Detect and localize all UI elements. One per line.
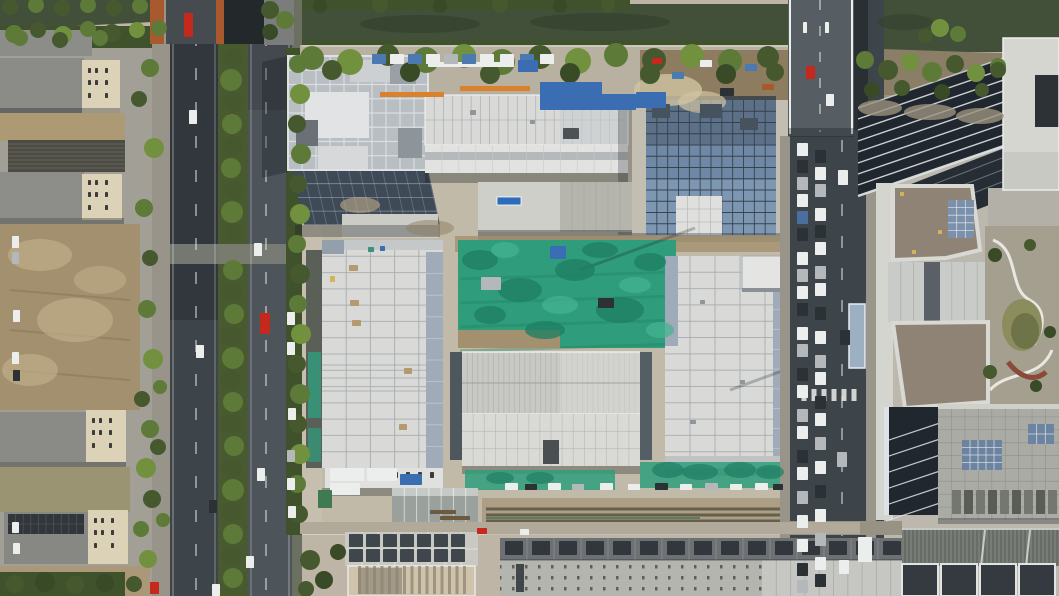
roof-hatch-strip [924,262,940,322]
marks-item [762,84,774,90]
vehicles-item [505,483,518,490]
vehicles-item [400,474,422,485]
tower-shadow [262,56,288,178]
marks-item [559,541,577,555]
marks-item [92,443,95,448]
trees-item [290,264,310,284]
bridge-end-shadow [788,128,854,137]
trees-item [222,414,242,434]
trees-item [1024,239,1036,251]
trees-item [716,64,736,84]
vehicles-item [797,563,808,576]
trees-item [983,365,997,379]
vehicles-item [209,500,217,513]
vehicles-item [550,246,566,259]
marks-item [95,80,98,85]
vehicles-item [636,92,666,108]
marks-item [88,68,91,73]
trees-item [261,1,279,19]
marks-item [530,120,535,124]
blobs-item [360,15,480,33]
marks-item [440,516,470,520]
trees-item [35,572,55,592]
marks-item [938,230,942,234]
marks-item [105,68,108,73]
vehicles-item [372,54,386,64]
trees-item [946,55,964,73]
blobs-item [474,306,506,324]
trees-item [1030,380,1042,392]
vehicles-item [12,522,19,533]
vehicles-item [797,467,808,480]
screenshot-root [0,0,1059,596]
gabled-unit [980,564,1016,596]
marks-item [652,58,662,64]
marks-item [101,530,104,535]
vehicles-item [189,110,197,124]
marks-item [532,541,550,555]
vehicles-item [462,54,476,64]
blobs-item [406,220,454,236]
white-tower-lower [1003,152,1059,190]
marks-item [720,88,734,96]
trees-item [141,420,159,438]
w3-door [543,440,559,464]
trees-item [224,92,244,112]
trees-item [66,576,84,594]
blobs-item [2,354,58,386]
marks-item [94,518,97,523]
vehicles-item [815,266,826,279]
marks-item [721,541,739,555]
blue-banner [497,197,521,205]
marks-item [92,418,95,423]
trees-item [322,60,342,80]
marks-item [690,420,696,424]
trees-item [223,136,243,156]
marks-item [1012,490,1021,514]
marks-item [700,104,722,118]
blobs-item [340,197,380,213]
trees-item [139,550,157,568]
marks-item [88,192,91,197]
marks-item [109,430,112,435]
marks-item [1000,490,1009,514]
trees-item [54,0,70,16]
site-offices-roof [392,488,478,496]
marks-item [694,541,712,555]
marks-item [825,22,829,33]
marks-item [434,549,448,562]
trees-item [224,180,244,200]
building-a-shadow [425,173,628,183]
marks-item [883,541,901,555]
trees-item [291,324,311,344]
marks-item [99,430,102,435]
blobs-item [652,462,684,478]
vehicles-item [330,468,364,481]
vehicles-item [150,582,159,594]
vehicles-item [797,327,808,340]
vehicles-item [518,60,538,72]
vehicles-item [408,54,422,64]
marks-item [105,180,108,185]
tower-lower-face [886,407,940,515]
trees-item [604,43,628,67]
vehicles-item [500,54,514,64]
blobs-item [530,13,670,31]
marks-item [88,180,91,185]
trees-item [223,524,243,544]
trees-item [894,80,910,96]
building-wall [82,60,120,113]
underpass [224,0,264,44]
vehicles-item [797,385,808,398]
trees-item [222,458,242,478]
blobs-item [1011,313,1039,349]
marks-item [105,205,108,210]
blobs-item [526,472,554,484]
vehicles-item [540,54,554,64]
yard-rows [8,144,125,168]
trees-item [290,84,310,104]
marks-item [94,530,97,535]
trees-item [151,20,167,36]
marks-item [111,543,114,548]
vehicles-item [184,13,193,37]
vehicles-item [705,483,718,490]
vehicles-item [797,143,808,156]
gabled-unit [902,564,938,596]
vehicles-item [826,94,834,106]
marks-item [740,380,745,384]
blobs-item [877,14,933,30]
marks-item [803,22,807,33]
vehicles-item [600,94,636,110]
vehicles-item [815,557,826,570]
marks-item [976,490,985,514]
sw-facade-patch [358,568,402,594]
marks-item [349,549,363,562]
trees-item [222,546,242,566]
vehicles-item [797,450,808,463]
marks-item [740,118,758,130]
trees-item [223,568,243,588]
vehicles-item [815,574,826,587]
blobs-item [37,298,113,342]
vehicles-item [815,307,826,320]
blobs-item [525,321,565,339]
marks-item [964,490,973,514]
marks-item [460,86,530,91]
marks-item [352,320,361,326]
trees-item [640,64,660,84]
marks-item [417,549,431,562]
vehicles-item [330,483,360,495]
trees-item [222,282,242,302]
vehicles-item [815,437,826,450]
vehicles-item [815,242,826,255]
building-shadow [0,462,126,467]
bridge-rail [216,0,224,44]
vehicles-item [288,408,296,420]
vehicles-item [797,252,808,265]
concrete-shadow [938,518,1059,524]
white-tower-court [1035,75,1059,127]
corrugated-roof [902,528,1059,566]
vehicles-item [797,580,808,593]
trees-item [300,550,320,570]
marks-item [700,300,705,304]
vehicles-item [797,286,808,299]
north-bank-trees [300,0,630,10]
trees-item [136,458,156,478]
vehicles-item [520,529,529,535]
vehicles-item [196,345,204,358]
trees-item [220,69,242,91]
marks-item [349,265,358,271]
blobs-item [555,259,595,281]
vehicles-item [572,484,584,490]
marks-item [99,418,102,423]
gabled-unit [941,564,977,596]
trees-item [931,19,949,37]
marks-item [109,443,112,448]
trees-item [288,235,306,253]
blobs-item [724,462,756,478]
vehicles-item [797,491,808,504]
vehicles-item [13,310,20,322]
vehicles-item [13,370,20,381]
vehicles-item [318,490,332,508]
marks-item [400,549,414,562]
trees-item [6,575,24,593]
vehicles-item [797,194,808,207]
blobs-item [582,242,618,258]
marks-item [417,534,431,547]
marks-item [434,534,448,547]
trees-item [950,26,966,42]
marks-item [400,534,414,547]
marks-item [111,518,114,523]
trees-item [289,175,307,193]
marks-item [748,541,766,555]
trees-item [856,51,874,69]
vehicles-item [797,344,808,357]
vehicles-item [815,167,826,180]
w3-east-edge [640,352,652,460]
trees-item [560,63,580,83]
vehicles-item [680,484,692,490]
trees-item [96,574,114,592]
vehicles-item [287,312,295,325]
vehicles-item [858,537,872,562]
marks-item [350,300,359,306]
vehicles-item [548,483,561,490]
trees-item [223,260,243,280]
trees-item [276,11,294,29]
vehicles-item [730,484,742,490]
building-roof [0,412,86,462]
marks-item [101,518,104,523]
marks-item [366,549,380,562]
vehicles-item [815,485,826,498]
blobs-item [756,465,784,479]
marks-item [1036,490,1045,514]
trees-item [224,436,244,456]
vehicles-item [797,269,808,282]
trees-item [92,30,108,46]
trees-item [144,138,164,158]
vehicles-item [797,211,808,224]
marks-item [399,424,407,430]
blobs-item [486,472,514,484]
vehicles-item [797,426,808,439]
building-wall [88,510,128,564]
trees-item [766,63,784,81]
trees-item [222,502,242,522]
trees-item [12,30,28,46]
vehicles-item [797,515,808,528]
grass-strip [0,467,130,512]
trees-item [221,158,241,178]
w3-west-edge [450,352,462,460]
vehicles-item [288,506,296,518]
marks-item [430,472,434,478]
vehicles-item [212,584,220,596]
vehicles-item [444,54,458,64]
marks-item [988,490,997,514]
trees-item [922,62,942,82]
trees-item [262,24,278,40]
building-roof [0,58,84,113]
tower-opening [398,128,422,158]
marks-item [829,541,847,555]
vehicles-item [480,54,494,64]
marks-item [563,128,579,139]
vehicles-item [815,372,826,385]
vehicles-item [797,228,808,241]
trees-item [300,46,324,70]
trees-item [290,204,310,224]
vehicles-item [806,66,815,79]
building-roof [0,172,84,218]
trees-item [222,347,244,369]
vehicles-item [525,484,537,490]
blobs-item [904,104,956,120]
aerial-photo [0,0,1059,596]
building-wall [86,410,126,462]
marks-item [380,92,444,97]
vehicles-item [815,533,826,546]
marks-item [900,192,904,196]
concrete-parapet [938,404,1059,409]
tower-white-edge [884,407,889,515]
trees-item [106,0,122,16]
vehicles-item [815,413,826,426]
vehicles-item [815,225,826,238]
marks-item [775,541,793,555]
vehicles-item [815,509,826,522]
vehicles-item [540,82,602,110]
marks-item [586,541,604,555]
vehicles-item [477,528,487,534]
trees-item [143,490,161,508]
gravel-terrace-2 [893,322,988,408]
vehicles-item [815,208,826,221]
blobs-item [634,253,666,271]
marks-item [105,192,108,197]
marks-item [105,93,108,98]
trees-item [224,304,244,324]
vehicles-item [257,468,265,481]
trees-item [291,144,311,164]
vehicles-item [287,478,295,490]
marks-item [672,72,684,79]
trees-item [315,571,333,589]
trees-item [156,513,170,527]
blobs-item [542,296,578,314]
blobs-item [74,266,126,294]
marks-item [349,534,363,547]
w1-green-mesh [308,352,321,418]
vehicles-item [815,184,826,197]
marks-item [380,246,385,251]
trees-item [901,53,919,71]
vehicles-item [815,331,826,344]
trees-item [288,355,306,373]
transition-ground [988,188,1059,228]
trees-item [223,48,243,68]
marks-item [404,368,412,374]
trees-item [221,201,243,223]
vehicles-item [628,484,640,490]
vehicles-item [755,483,768,490]
trees-item [150,439,166,455]
vehicles-item [840,330,850,345]
marks-item [613,541,631,555]
trees-item [988,248,1002,262]
marks-item [383,549,397,562]
vehicles-item [797,303,808,316]
trees-item [138,300,156,318]
trees-item [143,349,163,369]
south-building-wall [500,560,762,596]
trees-item [878,60,898,80]
trees-item [221,370,241,390]
vehicles-item [287,342,295,355]
trees-item [153,380,167,394]
tree-shadows [170,0,218,320]
trees-item [1044,326,1056,338]
marks-item [1048,490,1057,514]
marks-item [330,276,335,282]
trees-item [330,544,346,560]
vehicles-item [246,556,254,568]
marks-item [95,180,98,185]
trees-item [222,326,242,346]
vehicles-item [797,177,808,190]
marks-item [745,64,757,71]
marks-item [88,93,91,98]
vehicles-item [600,483,613,490]
vehicles-item [12,252,19,264]
trees-item [918,29,932,43]
marks-item [366,534,380,547]
vehicles-item [815,150,826,163]
vehicles-item [426,54,440,64]
trees-item [126,576,142,592]
